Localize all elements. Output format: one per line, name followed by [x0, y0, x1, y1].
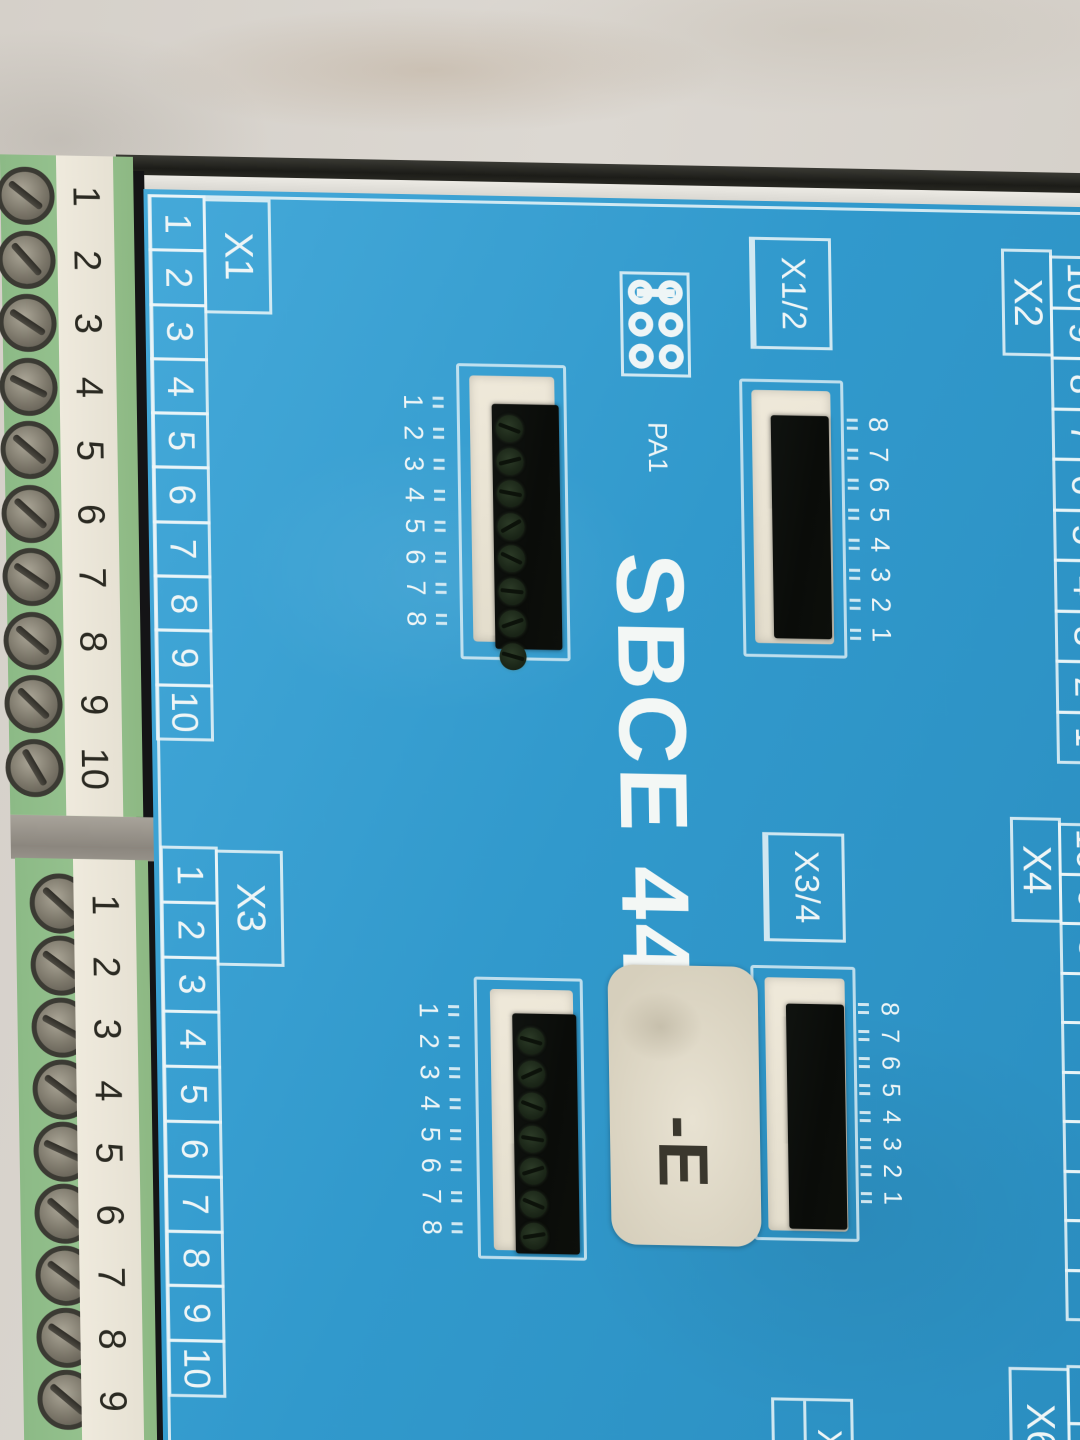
pin-number-cell: 6 [152, 466, 211, 524]
pin-number: 3 [1065, 626, 1080, 647]
pin-number: 2 [877, 1159, 906, 1184]
terminal-screw [2, 547, 61, 606]
pin-number: 8 [162, 593, 204, 614]
connector-x1-socket-outline [456, 363, 571, 661]
pa1-pad-ring [658, 312, 683, 337]
pin-number: 6 [1071, 1037, 1080, 1058]
pin-number-cell: 9 [154, 629, 213, 687]
pin-label-row: 6 [403, 541, 446, 573]
terminal-number-row: 5 [77, 1121, 140, 1184]
pin-number: 2 [1074, 1235, 1080, 1256]
socket-screw [496, 447, 523, 475]
screw-slot [13, 497, 48, 529]
pin-number: 7 [875, 1024, 904, 1049]
pin-number: 3 [157, 321, 199, 342]
pin-number-cell: 8 [166, 1229, 225, 1288]
pin-tick-marks [434, 459, 445, 470]
socket-screw [496, 415, 523, 443]
pin-tick-marks [433, 397, 444, 408]
pa1-pad-ring [658, 344, 683, 369]
terminal-screws [0, 166, 64, 797]
connector-header-x2: X2 [1001, 249, 1054, 357]
pin-number-cell: 5 [1053, 508, 1080, 563]
pin-number: 8 [874, 997, 903, 1022]
pin-number: 6 [399, 545, 430, 570]
screw-slot [9, 308, 47, 336]
pin-number: 1 [412, 998, 443, 1023]
terminal-number: 5 [87, 1142, 130, 1164]
pin-number-cell: 5 [163, 1065, 222, 1124]
pin-number: 10 [1059, 262, 1080, 304]
connector-label-box-x12: X1/2 [749, 237, 833, 351]
socket-screw [499, 642, 526, 670]
pin-number: 7 [415, 1184, 446, 1209]
pin-label-row: 1 [850, 619, 893, 650]
pin-tick-marks [451, 1160, 462, 1171]
socket-screw [497, 512, 524, 540]
pin-number: 6 [1062, 474, 1080, 495]
connector-header-x6: X6 [1008, 1367, 1071, 1440]
connector-header-label: X2 [1004, 278, 1050, 328]
pin-number: 8 [174, 1248, 216, 1269]
terminal-number: 1 [83, 893, 126, 915]
connector-header-label: X4 [1013, 845, 1059, 895]
pin-label-row: 7 [847, 439, 890, 470]
pin-number: 10 [163, 691, 206, 733]
connector-bezel [469, 375, 558, 643]
pin-number: 5 [159, 430, 201, 451]
terminal-screw [1, 484, 60, 543]
terminal-number: 7 [89, 1266, 132, 1288]
pin-number: 7 [173, 1193, 215, 1214]
screw-slot [500, 552, 522, 565]
terminal-number-row: 10 [65, 736, 123, 801]
pin-number: 3 [864, 562, 895, 587]
pin-number-cell: 4 [1063, 1120, 1080, 1174]
pin-tick-marks [433, 428, 444, 439]
pin-number: 1 [168, 864, 210, 885]
connector-header-x1: X1 [203, 198, 273, 314]
pin-label-row: 6 [859, 1049, 902, 1077]
pin-number: 7 [161, 539, 203, 560]
pin-number: 2 [1066, 676, 1080, 697]
screw-slot [13, 562, 50, 591]
pin-number: 8 [862, 412, 893, 437]
screw-slot [21, 748, 47, 787]
pin-number: 2 [169, 919, 211, 940]
label-cell: X1/2 [755, 240, 831, 347]
pin-tick-marks [434, 521, 445, 532]
pin-number: 7 [1070, 987, 1080, 1008]
screw-slot [500, 519, 521, 533]
pin-number-cell: 10 [155, 683, 214, 741]
connector-socket-opening [771, 415, 832, 639]
pin-tick-marks [849, 568, 860, 579]
terminal-screw [0, 420, 59, 479]
terminal-screw [0, 230, 56, 289]
connector-socket-opening [492, 404, 563, 650]
terminal-number: 6 [88, 1204, 131, 1226]
pin-tick-marks [435, 583, 446, 594]
connector-bezel [751, 390, 834, 645]
socket-screw-pins [517, 1027, 547, 1250]
pin-tick-marks [860, 1138, 871, 1149]
screw-slot [522, 1166, 545, 1176]
pin-label-row: 5 [848, 499, 891, 530]
connector-header-x3: X3 [215, 850, 285, 967]
terminal-number-row: 3 [58, 291, 116, 356]
pin-label-row: 3 [849, 559, 892, 590]
screw-slot [7, 180, 43, 211]
pin-tick-marks [860, 1111, 871, 1122]
pin-number-cell: 7 [165, 1174, 224, 1233]
pin-label-row: 1 [400, 386, 443, 418]
screw-slot [523, 1232, 546, 1239]
terminal-number-row: 4 [76, 1059, 139, 1122]
pin-number: 3 [398, 452, 429, 477]
pin-number-cell: 7 [1060, 971, 1080, 1025]
screw-slot [498, 423, 521, 435]
pin-number-cell: 2 [148, 248, 207, 306]
pin-number: 5 [876, 1078, 905, 1103]
pin-number: 7 [1062, 424, 1080, 445]
terminal-number-row: 8 [80, 1307, 143, 1370]
pin-label-row: 8 [419, 1212, 462, 1244]
pin-number-cell: 4 [162, 1010, 221, 1069]
pin-number: 8 [400, 607, 431, 632]
pin-number: 10 [176, 1347, 219, 1389]
pa1-pad-ring [628, 311, 653, 336]
pin-number: 2 [157, 267, 199, 288]
socket-screw [518, 1060, 545, 1088]
connector-header-label: X1 [215, 231, 261, 281]
pin-tick-marks [859, 1084, 870, 1095]
screw-slot [501, 618, 524, 629]
terminal-number: 9 [91, 1390, 134, 1412]
pin-number-cell: 3 [161, 955, 220, 1014]
connector-header-label: X3 [227, 883, 273, 933]
connector-label-box-x5: X5 [771, 1397, 855, 1440]
pin-tick-marks [858, 1030, 869, 1041]
variant-sticker-text: -E [643, 1115, 724, 1191]
pin-tick-marks [449, 1067, 460, 1078]
pin-number: 3 [876, 1132, 905, 1157]
terminal-label-strip: 1 2 3 4 [73, 859, 144, 1440]
pin-number: 6 [875, 1051, 904, 1076]
pin-tick-marks [850, 628, 861, 639]
pin-tick-marks [847, 418, 858, 429]
pin-number-cell: 5 [1062, 1070, 1080, 1124]
terminal-number-row: 1 [56, 164, 114, 229]
screw-slot [502, 651, 525, 661]
pin-label-row: 3 [417, 1056, 460, 1088]
pin-label-row: 4 [859, 1103, 902, 1131]
pin-number-cell: 4 [1054, 559, 1080, 614]
pin-number: 9 [1069, 888, 1080, 909]
connector-label: X3/4 [786, 850, 826, 925]
pin-number-cell: 1 [160, 846, 219, 905]
connector-header-x4: X4 [1010, 817, 1063, 923]
pin-number: 4 [414, 1091, 445, 1116]
pin-label-row: 2 [401, 417, 444, 449]
pin-number: 2 [413, 1029, 444, 1054]
pin-label-row: 2 [860, 1157, 903, 1185]
screw-slot [522, 1197, 545, 1209]
photo-of-sbce44-module: 1 2 3 4 [0, 0, 1080, 1440]
pin-tick-marks [435, 552, 446, 563]
pin-tick-marks [849, 598, 860, 609]
model-title: SBCE 44 [594, 552, 711, 982]
pin-label-row: 2 [849, 589, 892, 620]
terminal-number-row: 5 [60, 419, 118, 484]
terminal-number-row: 9 [81, 1369, 144, 1432]
terminal-block-2: 1 2 3 4 [15, 858, 157, 1440]
pin-number: 2 [397, 420, 428, 445]
pin-number: 9 [175, 1303, 217, 1324]
pin-label-row: 2 [416, 1025, 459, 1057]
pin-number: 6 [160, 484, 202, 505]
terminal-number: 2 [64, 249, 107, 271]
socket-screw [498, 545, 525, 573]
pin-tick-marks [848, 478, 859, 489]
pin-label-row: 7 [419, 1181, 462, 1213]
connector-label: X1/2 [773, 256, 813, 331]
pin-label-row: 5 [402, 510, 445, 542]
pin-tick-marks [848, 508, 859, 519]
connector-a-pin-ladder: 1 2 3 4 [400, 386, 447, 635]
pin-tick-marks [860, 1165, 871, 1176]
screw-slot [521, 1135, 544, 1142]
label-cell-empty [774, 1400, 808, 1440]
terminal-number-row: 1 [73, 873, 136, 936]
pin-tick-marks [858, 1003, 869, 1014]
socket-screw [519, 1157, 546, 1185]
connector-bezel [490, 989, 577, 1252]
pin-number-cell: 9 [1050, 306, 1080, 361]
terminal-screw [4, 674, 63, 733]
pin-label-row: 8 [847, 409, 890, 440]
pin-number: 8 [416, 1215, 447, 1240]
pin-number-cell: 10 [1049, 255, 1080, 310]
pin-number: 9 [163, 647, 205, 668]
socket-screw [517, 1027, 544, 1055]
pin-tick-marks [450, 1129, 461, 1140]
pin-label-row: 6 [418, 1150, 461, 1182]
pin-number: 4 [876, 1105, 905, 1130]
pin-number: 10 [1068, 829, 1080, 871]
terminal-screw [0, 166, 55, 225]
pin-number: 1 [877, 1186, 906, 1211]
terminal-number: 8 [70, 630, 113, 652]
terminal-number: 4 [66, 376, 109, 398]
pin-number: 3 [1074, 1186, 1080, 1207]
pin-number-cell: 3 [1055, 609, 1080, 664]
pin-label-row: 7 [858, 1022, 901, 1050]
pin-tick-marks [847, 448, 858, 459]
screw-slot [521, 1067, 543, 1080]
terminal-number-row: 3 [75, 997, 138, 1060]
terminal-number: 2 [84, 956, 127, 978]
pin-label-row: 4 [402, 479, 445, 511]
pin-number: 9 [1060, 323, 1080, 344]
pin-number: 3 [170, 974, 212, 995]
socket-screw [518, 1092, 545, 1120]
screw-slot [9, 374, 48, 398]
connector-x3-socket-outline [474, 977, 587, 1261]
connector-header-label: X6 [1017, 1403, 1063, 1440]
pa1-pad-ring [628, 343, 653, 368]
terminal-number: 3 [85, 1018, 128, 1040]
screw-slot [10, 241, 42, 276]
control-module: 1 2 3 4 [0, 160, 1080, 1440]
pin-label-row: 8 [858, 995, 901, 1023]
terminal-number-row: 6 [78, 1183, 141, 1246]
pin-number: 2 [865, 592, 896, 617]
pin-number-cell: 1 [1056, 710, 1080, 765]
connector-label: X5 [809, 1428, 849, 1440]
connector-label-box-x34: X3/4 [762, 832, 846, 943]
socket-screw [497, 480, 524, 508]
label-cell: X5 [807, 1401, 852, 1440]
pin-number: 1 [1075, 1285, 1080, 1306]
socket-screw-pins [496, 415, 527, 670]
pin-number: 4 [398, 483, 429, 508]
pin-number-cell: 5 [151, 411, 210, 469]
pin-number: 7 [863, 442, 894, 467]
terminal-block-1: 1 2 3 4 [0, 154, 143, 817]
pin-number: 1 [156, 213, 198, 234]
pin-label-row: 7 [403, 572, 446, 604]
terminal-numbers: 1 2 3 4 [73, 873, 144, 1432]
pin-number-cell: 6 [1052, 458, 1080, 513]
pin-label-row: 4 [848, 529, 891, 560]
screw-slot [499, 456, 522, 465]
pin-number-cell: 1 [147, 194, 206, 252]
pin-number-cell: 7 [153, 520, 212, 578]
connector-x34-socket-outline [750, 965, 859, 1242]
terminal-number-row: 4 [59, 355, 117, 420]
terminal-block-rail-gap [10, 815, 157, 862]
pin-number: 4 [158, 376, 200, 397]
connector-bezel [764, 977, 848, 1232]
terminal-number-row: 8 [63, 609, 121, 674]
pin-number-cell: 9 [167, 1284, 226, 1343]
screw-slot [501, 588, 524, 594]
pin-number: 5 [414, 1122, 445, 1147]
pin-number: 3 [413, 1060, 444, 1085]
socket-screw [498, 577, 525, 605]
front-panel: 1 2 3 4 5 [143, 189, 1080, 1440]
socket-screw [519, 1125, 546, 1153]
pin-number-cell: 2 [161, 900, 220, 959]
pa1-pad-ring [627, 280, 652, 305]
pin-tick-marks [448, 1005, 459, 1016]
pin-number: 4 [1064, 575, 1080, 596]
terminal-label-strip: 1 2 3 4 [56, 155, 123, 816]
pin-tick-marks [849, 538, 860, 549]
pin-number-cell: 1 [1065, 1268, 1080, 1322]
pin-tick-marks [859, 1057, 870, 1068]
terminal-number-row: 7 [62, 546, 120, 611]
pin-label-row: 8 [404, 603, 447, 635]
pin-number: 1 [865, 622, 896, 647]
pin-number: 5 [863, 502, 894, 527]
connector-socket-opening [786, 1004, 848, 1230]
screw-slot [17, 687, 51, 720]
pin-number: 6 [863, 472, 894, 497]
pin-label-row: 5 [859, 1076, 902, 1104]
terminal-number: 7 [69, 567, 112, 589]
pin-tick-marks [449, 1036, 460, 1047]
pin-number-cell: 7 [1051, 407, 1080, 462]
variant-sticker: -E [607, 964, 761, 1247]
pin-number: 5 [399, 514, 430, 539]
terminal-number: 1 [63, 186, 106, 208]
pin-number: 6 [415, 1153, 446, 1178]
pin-number: 8 [1061, 373, 1080, 394]
label-cell: X3/4 [768, 835, 844, 939]
pin-number-cell: 2 [1055, 660, 1080, 715]
connector-socket-opening [512, 1013, 580, 1254]
pin-number-cell: 6 [1061, 1021, 1080, 1075]
terminal-number-row: 2 [74, 935, 137, 998]
pin-number-cell: 8 [1059, 922, 1080, 976]
pin-number: 5 [1072, 1087, 1080, 1108]
pin-number: 6 [172, 1138, 214, 1159]
pin-number-cell: 3 [149, 303, 208, 361]
terminal-number-row: 2 [57, 228, 115, 293]
pin-label-row: 4 [417, 1087, 460, 1119]
pin-tick-marks [434, 490, 445, 501]
screw-slot [15, 624, 51, 656]
screw-slot [12, 434, 48, 466]
terminal-number: 8 [90, 1328, 133, 1350]
pa1-label: PA1 [641, 422, 673, 475]
terminal-screw [0, 357, 58, 416]
pin-tick-marks [451, 1222, 462, 1233]
pin-tick-marks [436, 614, 447, 625]
pin-tick-marks [451, 1191, 462, 1202]
terminal-number: 6 [68, 503, 111, 525]
screw-slot [42, 886, 78, 920]
pa1-pad-ring [657, 280, 682, 305]
terminal-number-row: 9 [64, 673, 122, 738]
pin-number-cell: 3 [1063, 1169, 1080, 1223]
pin-number: 7 [400, 576, 431, 601]
socket-screw [520, 1190, 547, 1218]
socket-screw [520, 1222, 547, 1250]
pin-number-cell: 4 [150, 357, 209, 415]
terminal-number: 5 [67, 440, 110, 462]
socket-screw [499, 610, 526, 638]
pin-label-row: 3 [401, 448, 444, 480]
terminal-screw [3, 611, 62, 670]
terminal-numbers: 1 2 3 4 [56, 164, 123, 800]
terminal-screw [5, 738, 64, 797]
pin-label-row: 1 [416, 994, 459, 1026]
terminal-number-row: 6 [61, 482, 119, 547]
connector-d-pin-ladder: 8 7 6 5 [858, 995, 904, 1212]
connector-b-pin-ladder: 8 7 6 5 [847, 409, 894, 650]
pin-tick-marks [861, 1192, 872, 1203]
pin-label-row: 5 [418, 1119, 461, 1151]
pin-number-cell: 2 [1064, 1219, 1080, 1273]
pin-number: 5 [171, 1084, 213, 1105]
pin-number: 1 [397, 389, 428, 414]
screw-slot [521, 1100, 544, 1112]
pin-tick-marks [450, 1098, 461, 1109]
connector-x12-socket-outline [739, 379, 847, 659]
